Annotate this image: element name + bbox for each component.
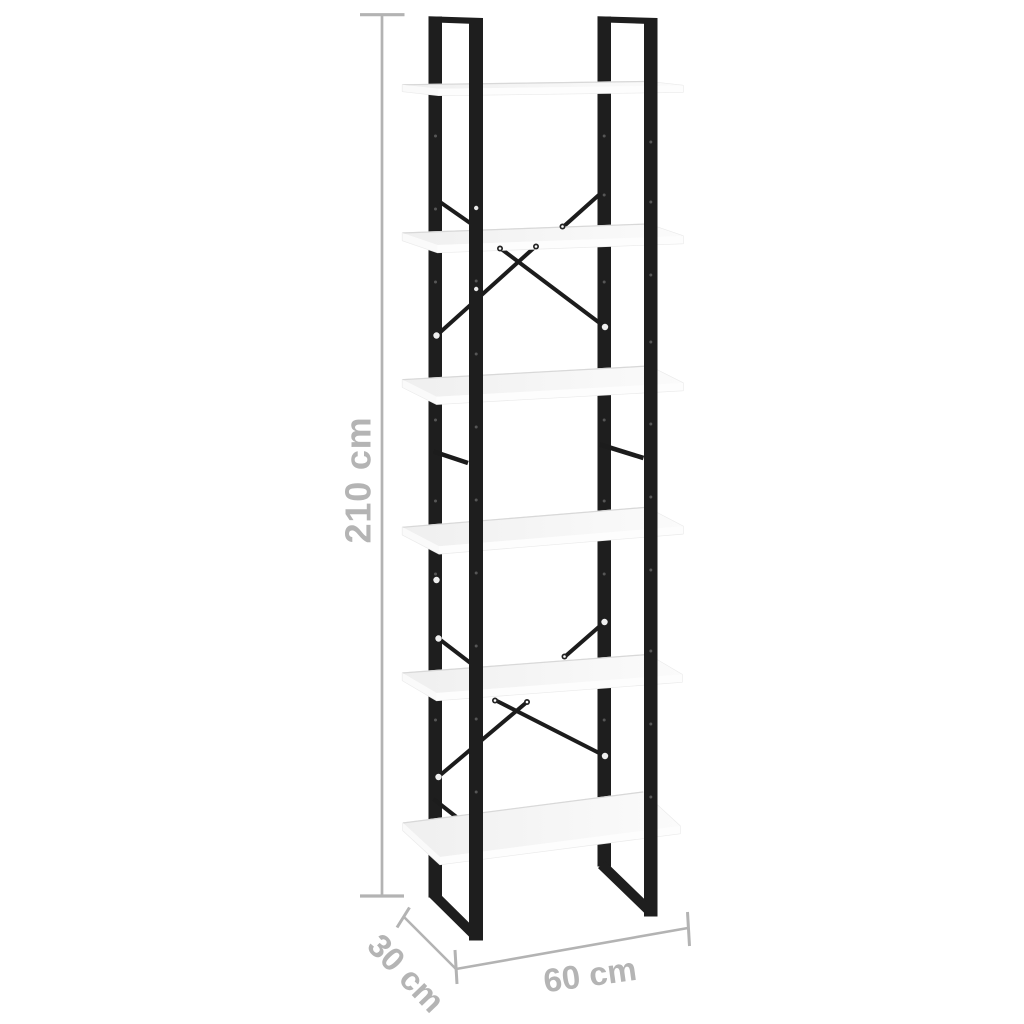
svg-text:60 cm: 60 cm — [541, 950, 639, 999]
svg-text:30 cm: 30 cm — [360, 927, 452, 1020]
svg-text:210 cm: 210 cm — [338, 417, 379, 544]
